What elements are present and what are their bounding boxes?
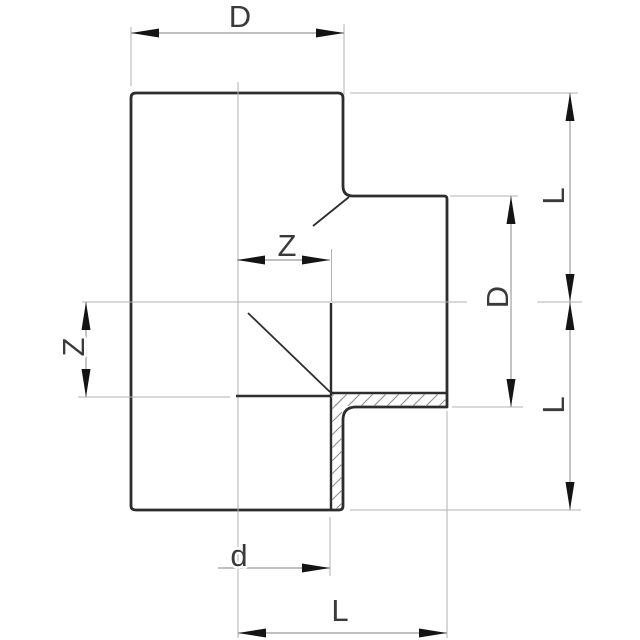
dim-label-L-right-upper: L	[536, 187, 571, 204]
dim-label-Z-middle: Z	[278, 228, 297, 263]
drawing-canvas: D Z d L Z D L L	[0, 0, 640, 640]
dim-label-L-right-lower: L	[536, 396, 571, 413]
dim-label-Z-left: Z	[56, 338, 91, 357]
dim-label-D-right: D	[480, 286, 515, 308]
hatch-bottom-wall	[332, 397, 342, 509]
dim-label-L-bottom: L	[331, 593, 348, 628]
dim-label-d-bottom: d	[230, 538, 247, 573]
tee-fitting-technical-drawing: D Z d L Z D L L	[0, 0, 640, 640]
section-hatching	[331, 394, 446, 509]
hatch-branch-wall	[331, 394, 446, 406]
dim-label-D-top: D	[229, 0, 251, 34]
